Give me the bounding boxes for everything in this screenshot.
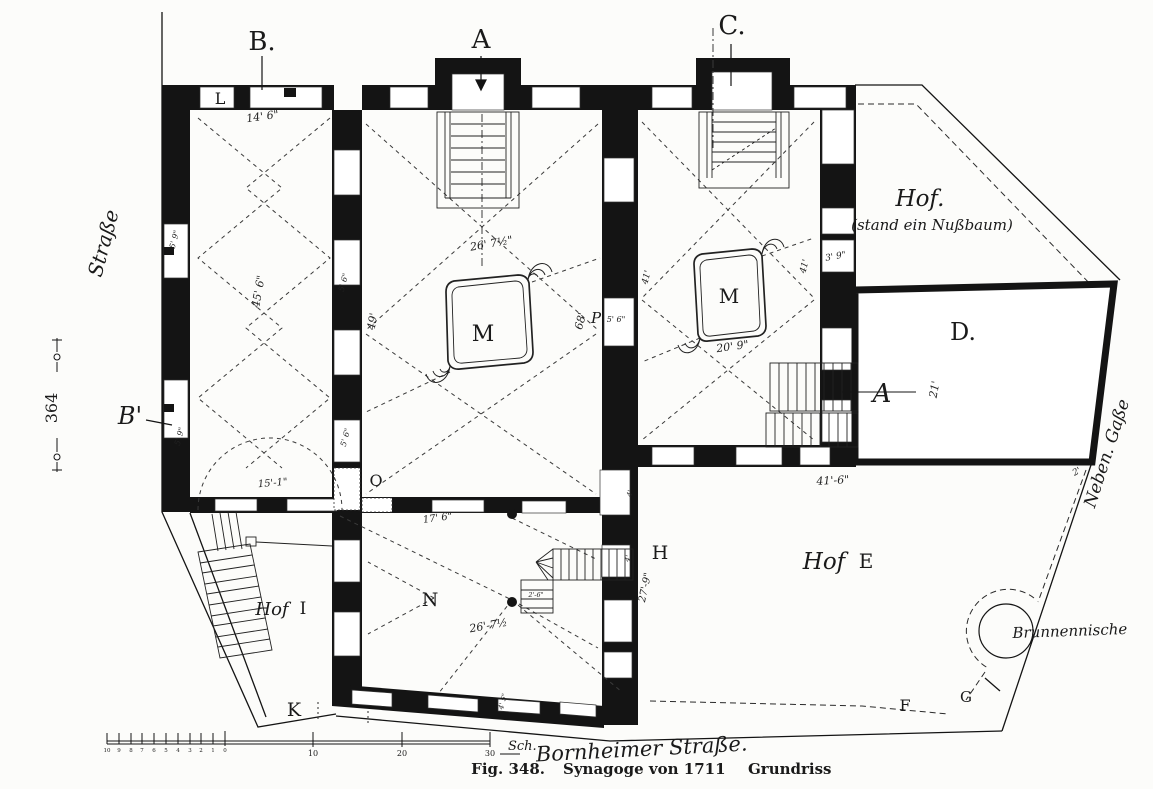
room-d-walls <box>855 284 1114 462</box>
bimah-label-m-main: M <box>472 322 495 347</box>
scale-major-tick-label: 30 <box>485 749 495 758</box>
dim-45-6: 45' 6" <box>249 274 268 309</box>
room-label-d: D. <box>950 318 976 346</box>
room-label-h: H <box>652 542 669 564</box>
caption-title: Synagoge von 1711 <box>563 760 726 778</box>
scale-minor-tick-label: 7 <box>140 748 144 754</box>
stair-ref-a-script: A <box>871 379 892 409</box>
scale-minor-tick-label: 0 <box>223 748 227 754</box>
scale-minor-tick-label: 8 <box>129 748 133 754</box>
dim-2-6: 2'-6" <box>527 591 543 599</box>
scale-minor-tick-label: 3 <box>188 748 192 754</box>
dim-26-7-main: 26' 7½" <box>468 233 514 253</box>
section-marker-b-prime: B' <box>117 402 142 430</box>
page-number: 364 <box>42 393 61 424</box>
dim-41-b: 41' <box>798 258 812 275</box>
stair-bay-a <box>437 112 519 208</box>
dim-41-6: 41'-6" <box>815 473 849 488</box>
hof-d-label-line2: (stand ein Nußbaum) <box>851 216 1013 234</box>
scale-minor-tick-label: 9 <box>117 748 121 754</box>
vault-lines <box>198 118 814 694</box>
caption-fig-number: Fig. 348. <box>471 760 545 778</box>
scale-minor-tick-label: 5 <box>164 748 168 754</box>
dim-41-a: 41' <box>640 269 654 286</box>
room-label-f: F <box>899 696 910 715</box>
dim-14-6: 14' 6" <box>245 108 279 125</box>
scale-bar-minor-labels: 10 9 8 7 6 5 4 3 2 1 0 <box>104 748 228 754</box>
scale-major-tick-label: 20 <box>397 749 407 758</box>
dim-68: 68' <box>572 311 589 331</box>
scale-major-tick-label: 10 <box>308 749 318 758</box>
scanned-floor-plan-page: 10 9 8 7 6 5 4 3 2 1 0 10 20 30 Sch. B. … <box>0 0 1153 789</box>
street-label-left: Straße <box>83 207 124 279</box>
scale-minor-tick-label: 1 <box>211 748 215 754</box>
floor-plan-drawing: 10 9 8 7 6 5 4 3 2 1 0 10 20 30 Sch. B. … <box>0 0 1153 789</box>
dim-27-9: 27'-9" <box>637 572 654 604</box>
room-label-i: I <box>300 599 307 619</box>
scale-minor-tick-label: 2 <box>199 748 203 754</box>
figure-caption: Fig. 348. Synagoge von 1711 Grundriss <box>471 760 831 778</box>
dim-17-6: 17' 6" <box>422 511 453 526</box>
hof-d-label-line1: Hof. <box>895 186 945 212</box>
scale-minor-tick-label: 6 <box>152 748 156 754</box>
section-marker-b: B. <box>248 27 275 57</box>
scale-minor-tick-label: 10 <box>104 748 111 754</box>
room-label-l: L <box>215 89 226 108</box>
dim-5-6-p: 5' 6" <box>607 315 626 324</box>
room-label-n: N <box>422 589 439 611</box>
dim-15-1: 15'-1" <box>257 477 288 491</box>
dim-26-7-n: 26'-7½ <box>467 616 508 636</box>
room-label-g: G <box>960 688 972 706</box>
section-marker-a: A <box>471 25 492 55</box>
walls <box>162 58 856 728</box>
scale-unit-label: Sch. <box>508 739 537 754</box>
dim-2: 2' <box>1070 466 1083 479</box>
room-label-o: O <box>369 471 382 490</box>
opening-label-p: P <box>590 309 602 327</box>
hof-e-label-script: Hof <box>802 549 849 575</box>
section-marker-c: C. <box>718 11 745 41</box>
caption-subtitle: Grundriss <box>748 760 832 778</box>
well-niche-label: Brunnennische <box>1011 620 1127 642</box>
dim-49: 49' <box>364 312 380 332</box>
stair-bay-c <box>699 112 789 188</box>
hof-i-label-script: Hof <box>254 599 292 620</box>
room-label-e: E <box>859 549 874 573</box>
column-top <box>507 509 517 519</box>
scale-bar-major-labels: 10 20 30 <box>308 749 495 758</box>
column-mid <box>507 597 517 607</box>
scale-minor-tick-label: 4 <box>176 748 180 754</box>
room-label-k: K <box>287 699 302 721</box>
door-opening-partition <box>334 468 360 510</box>
door-opening-o <box>362 498 392 512</box>
bimah-label-m-right: M <box>719 284 739 308</box>
